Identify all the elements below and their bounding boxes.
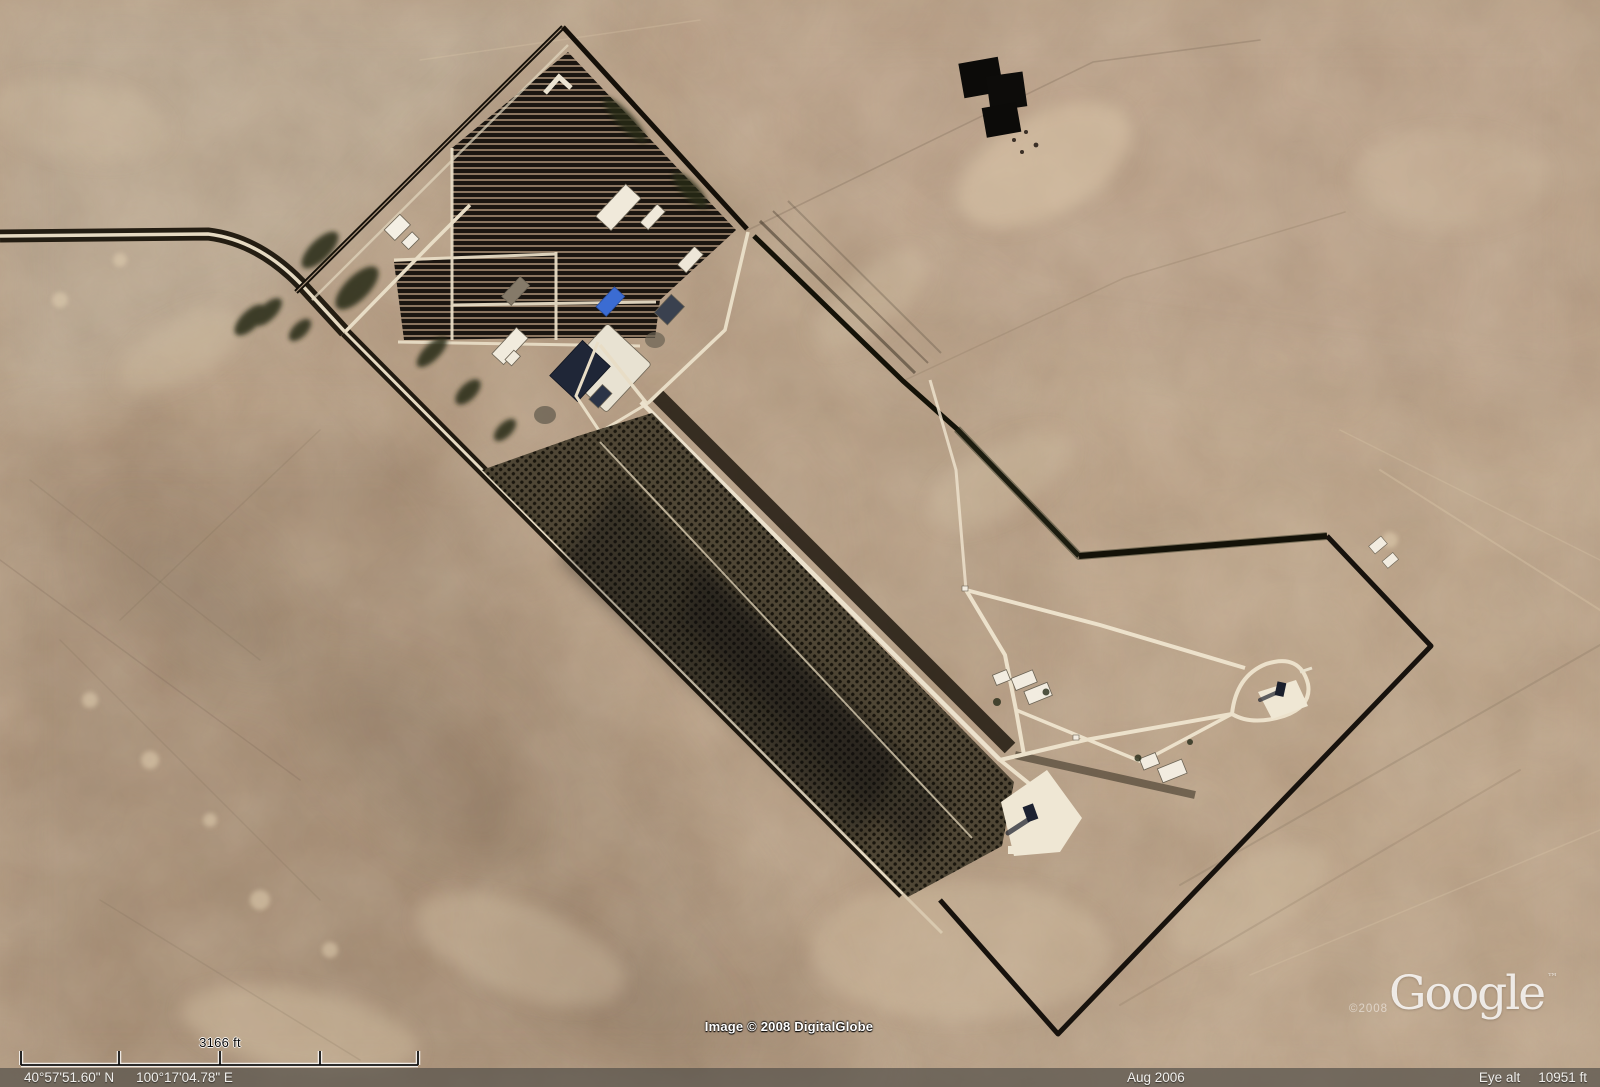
google-logo: Google™ — [1389, 966, 1558, 1021]
coordinates-readout: 40°57'51.60" N100°17'04.78" E — [24, 1068, 233, 1087]
imagery-credit: Image © 2008 DigitalGlobe — [705, 1019, 873, 1034]
eye-altitude-readout: Eye alt10951 ft — [1479, 1068, 1587, 1087]
google-earth-viewport: 3166 ft Image © 2008 DigitalGlobe ©2008 … — [0, 0, 1600, 1087]
latitude-value: 40°57'51.60" N — [24, 1070, 114, 1085]
longitude-value: 100°17'04.78" E — [136, 1070, 233, 1085]
status-bar: 40°57'51.60" N100°17'04.78" E Aug 2006 E… — [0, 1068, 1600, 1087]
imagery-date: Aug 2006 — [1127, 1068, 1185, 1087]
scale-bar — [19, 1048, 423, 1068]
logo-copyright: ©2008 — [1349, 1003, 1388, 1015]
satellite-imagery[interactable] — [0, 0, 1600, 1087]
trademark-symbol: ™ — [1547, 971, 1558, 984]
eye-alt-value: 10951 ft — [1538, 1070, 1587, 1085]
eye-alt-label: Eye alt — [1479, 1070, 1520, 1085]
google-logo-text: Google — [1389, 966, 1544, 1021]
